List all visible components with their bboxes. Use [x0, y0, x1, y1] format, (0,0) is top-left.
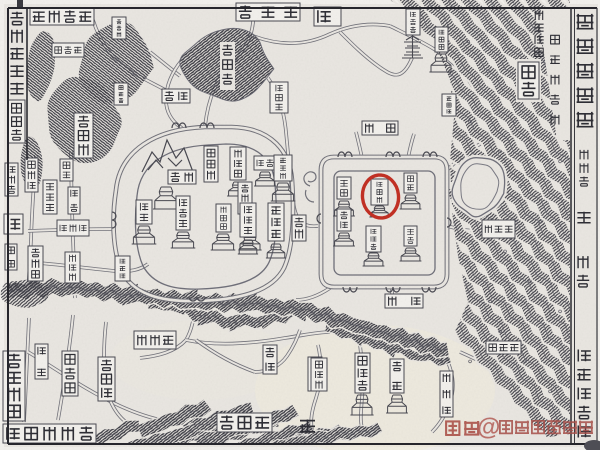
svg-text:@: @ — [477, 414, 500, 441]
